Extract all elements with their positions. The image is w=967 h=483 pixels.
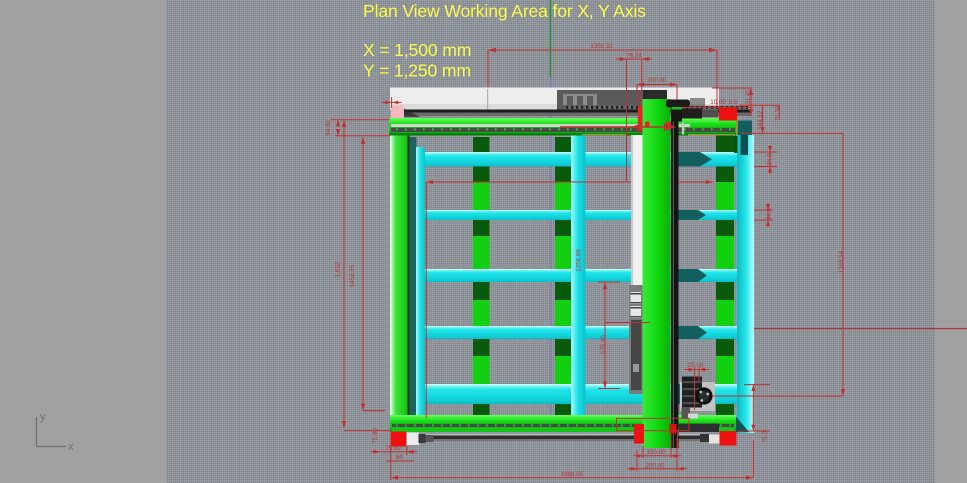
svg-text:X = 1,500 mm: X = 1,500 mm — [363, 40, 471, 60]
svg-text:144.12: 144.12 — [757, 110, 764, 129]
svg-text:60: 60 — [396, 454, 403, 461]
svg-text:75.00: 75.00 — [385, 445, 401, 452]
svg-text:10.00: 10.00 — [710, 99, 726, 106]
svg-text:94.00: 94.00 — [325, 120, 332, 136]
svg-text:84.0: 84.0 — [767, 153, 774, 166]
svg-text:Plan View Working Area for X,: Plan View Working Area for X, Y Axis — [363, 1, 646, 21]
svg-text:31.45: 31.45 — [745, 89, 752, 105]
svg-text:25.00: 25.00 — [688, 362, 704, 369]
svg-text:1452.35: 1452.35 — [349, 264, 356, 287]
svg-text:75.0: 75.0 — [762, 430, 769, 443]
svg-text:75.00: 75.00 — [372, 428, 379, 444]
svg-text:75.34: 75.34 — [775, 105, 782, 121]
svg-text:34.0: 34.0 — [766, 207, 773, 220]
svg-text:76.24: 76.24 — [626, 53, 642, 60]
svg-text:1256.69: 1256.69 — [576, 249, 583, 272]
svg-text:200.00: 200.00 — [646, 462, 665, 469]
svg-text:Y = 1,250 mm: Y = 1,250 mm — [363, 61, 471, 81]
svg-text:200.00: 200.00 — [648, 77, 667, 84]
svg-text:y: y — [40, 411, 46, 423]
svg-text:1,632: 1,632 — [335, 261, 342, 277]
svg-text:150.00: 150.00 — [647, 449, 666, 456]
svg-text:575.95: 575.95 — [600, 334, 607, 353]
svg-text:1988.55: 1988.55 — [561, 471, 584, 478]
svg-text:0.0: 0.0 — [729, 99, 738, 106]
svg-text:x: x — [68, 441, 74, 453]
svg-text:1368.54: 1368.54 — [838, 250, 845, 273]
svg-text:1302.32: 1302.32 — [590, 43, 613, 50]
